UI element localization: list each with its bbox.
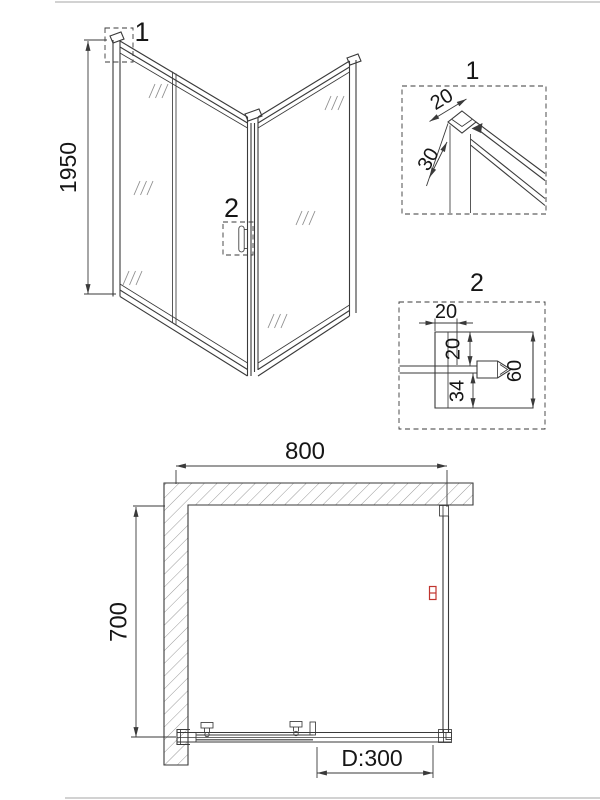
plan-width-label: 800 (285, 438, 325, 465)
detail-2-callout: 2 (223, 193, 253, 255)
corner-assembly (439, 730, 452, 743)
right-post (347, 54, 361, 316)
detail-2-bottom-gap-label: 34 (447, 380, 469, 402)
detail-2-dimensions: 20 20 34 60 (419, 301, 535, 408)
sliding-track (177, 730, 452, 745)
technical-drawing-sheet: 1 2 1950 1 20 (0, 0, 600, 800)
perspective-view: 1 2 1950 (55, 17, 361, 376)
height-dimension: 1950 (55, 40, 116, 294)
detail-2-top-gap-label: 20 (443, 338, 465, 360)
detail-1-profile-section (448, 111, 545, 213)
detail-1-dimensions: 20 30 (413, 84, 466, 186)
door-handle (239, 226, 248, 252)
door-handle-marker (430, 587, 437, 600)
bottom-rails (120, 284, 350, 376)
detail-2-title: 2 (470, 269, 484, 297)
drawing-canvas: 1 2 1950 1 20 (0, 0, 600, 800)
page-border (55, 2, 600, 798)
door-opening-label: D:300 (341, 745, 402, 771)
roller-bracket (290, 722, 302, 736)
detail-2-profile-width-label: 20 (435, 301, 457, 323)
left-post (110, 32, 124, 297)
detail-2-view: 2 20 20 34 60 (399, 269, 545, 429)
door-opening-dimension: D:300 (317, 745, 433, 778)
sliding-door-edge (173, 72, 177, 325)
plan-depth-label: 700 (106, 602, 133, 642)
height-dimension-label: 1950 (55, 142, 81, 193)
side-glass-panel (443, 516, 449, 733)
corner-post (245, 109, 262, 376)
detail-1-marker-label: 1 (134, 17, 149, 47)
sliding-door-panel (196, 722, 316, 743)
detail-2-marker-label: 2 (224, 193, 239, 223)
detail-1-width-label: 20 (427, 84, 457, 114)
wall-profile-bracket (440, 506, 449, 517)
plan-view: 800 700 D:300 (106, 438, 474, 778)
detail-2-total-height-label: 60 (504, 360, 526, 382)
detail-1-view: 1 20 30 (402, 57, 546, 214)
detail-1-title: 1 (466, 57, 480, 85)
